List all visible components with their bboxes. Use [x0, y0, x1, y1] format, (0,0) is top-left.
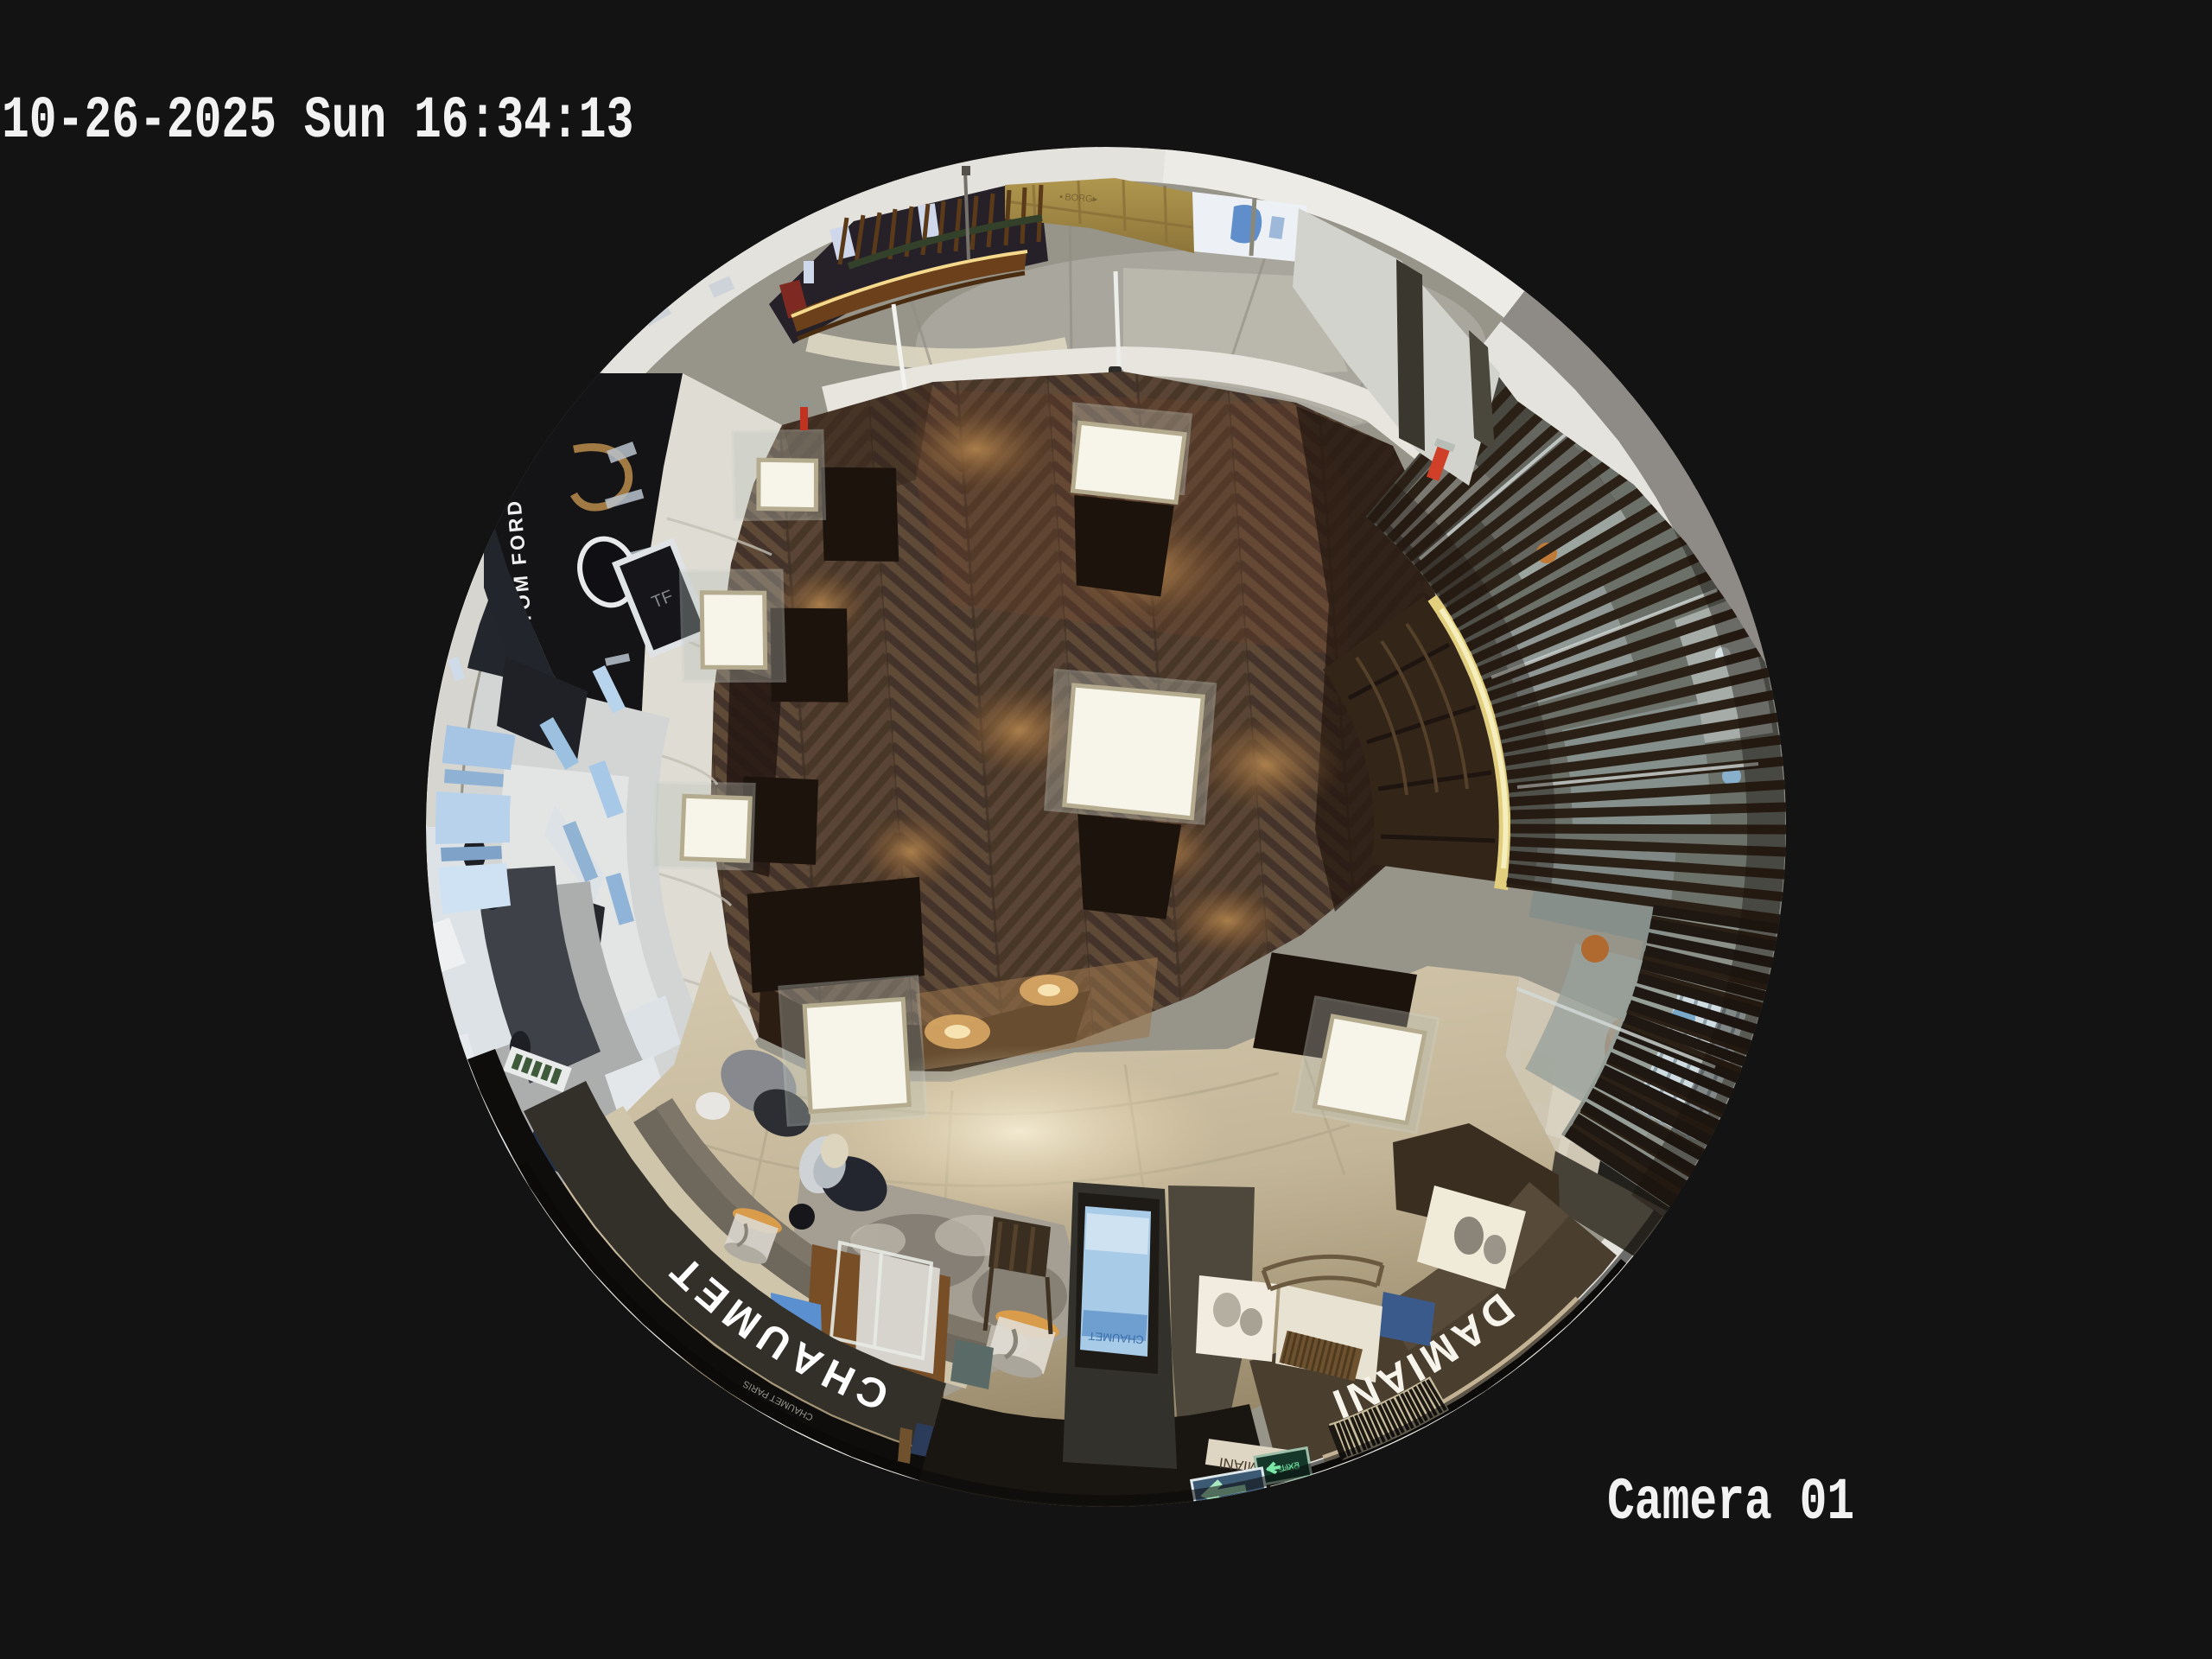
svg-text:Camera 01: Camera 01	[1607, 1470, 1854, 1536]
svg-text:10-26-2025 Sun 16:34:13: 10-26-2025 Sun 16:34:13	[2, 88, 633, 155]
